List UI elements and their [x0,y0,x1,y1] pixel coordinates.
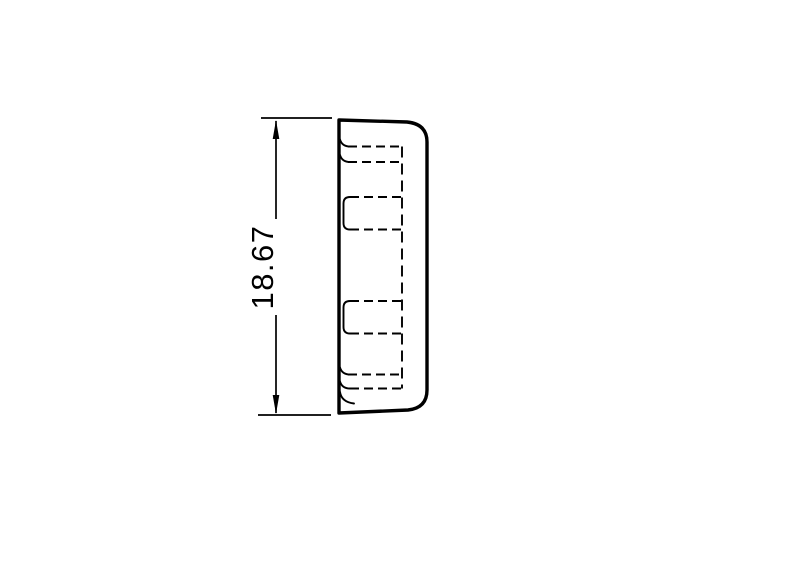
technical-drawing: 18.67 [0,0,800,576]
fillet-hook-bottom-corner [340,392,354,404]
arrowhead-up-icon [273,120,280,139]
fillet-hook-bot-2 [340,382,350,389]
fillet-hook-top-2 [340,155,350,162]
part-outline [339,120,427,413]
arrowhead-down-icon [273,395,280,414]
fillet-hook-top-1 [340,140,350,147]
rib-bracket-lower [344,301,351,334]
drawing-canvas: 18.67 [0,0,800,576]
rib-bracket-upper [344,197,351,230]
dimension-value: 18.67 [245,224,280,309]
fillet-hook-bot-1 [340,368,350,375]
drawing-group: 18.67 [245,118,427,415]
